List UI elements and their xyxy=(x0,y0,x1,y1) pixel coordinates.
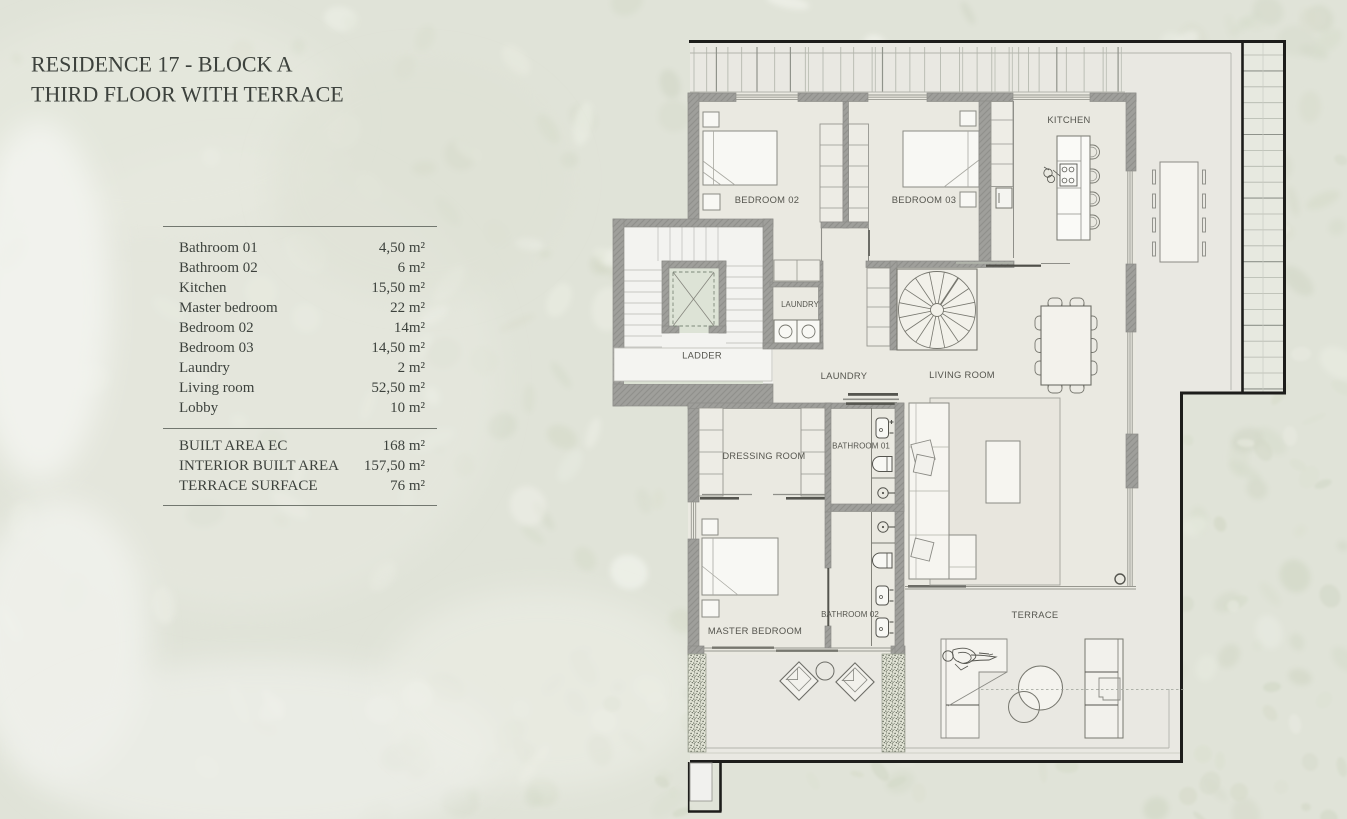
svg-text:BEDROOM 02: BEDROOM 02 xyxy=(735,194,799,205)
svg-text:Bathroom 02: Bathroom 02 xyxy=(179,260,258,276)
svg-text:LADDER: LADDER xyxy=(682,350,722,361)
svg-text:52,50 m²: 52,50 m² xyxy=(371,380,425,396)
svg-text:Living room: Living room xyxy=(179,380,255,396)
svg-text:TERRACE SURFACE: TERRACE SURFACE xyxy=(179,478,318,494)
svg-text:14,50 m²: 14,50 m² xyxy=(371,340,425,356)
svg-text:4,50 m²: 4,50 m² xyxy=(379,240,426,256)
svg-text:BEDROOM 03: BEDROOM 03 xyxy=(892,194,956,205)
svg-text:76 m²: 76 m² xyxy=(390,478,425,494)
svg-text:14m²: 14m² xyxy=(394,320,426,336)
svg-text:6 m²: 6 m² xyxy=(398,260,426,276)
svg-text:BATHROOM 01: BATHROOM 01 xyxy=(832,442,890,451)
svg-text:Master bedroom: Master bedroom xyxy=(179,300,278,316)
svg-text:Kitchen: Kitchen xyxy=(179,280,227,296)
svg-text:15,50 m²: 15,50 m² xyxy=(371,280,425,296)
svg-text:LAUNDRY: LAUNDRY xyxy=(781,300,820,309)
svg-text:BUILT AREA EC: BUILT AREA EC xyxy=(179,438,287,454)
svg-text:Laundry: Laundry xyxy=(179,360,230,376)
svg-text:Bedroom 03: Bedroom 03 xyxy=(179,340,254,356)
svg-text:157,50 m²: 157,50 m² xyxy=(364,458,426,474)
svg-text:LAUNDRY: LAUNDRY xyxy=(821,370,868,381)
svg-text:BATHROOM 02: BATHROOM 02 xyxy=(821,610,879,619)
svg-text:THIRD FLOOR WITH TERRACE: THIRD FLOOR WITH TERRACE xyxy=(31,82,344,107)
svg-text:DRESSING ROOM: DRESSING ROOM xyxy=(722,451,805,461)
svg-text:LIVING ROOM: LIVING ROOM xyxy=(929,369,995,380)
svg-text:Bedroom 02: Bedroom 02 xyxy=(179,320,254,336)
svg-text:Bathroom 01: Bathroom 01 xyxy=(179,240,258,256)
svg-text:KITCHEN: KITCHEN xyxy=(1047,114,1090,125)
svg-text:INTERIOR BUILT AREA: INTERIOR BUILT AREA xyxy=(179,458,339,474)
svg-text:RESIDENCE 17 - BLOCK A: RESIDENCE 17 - BLOCK A xyxy=(31,52,293,77)
svg-text:168 m²: 168 m² xyxy=(383,438,426,454)
svg-text:22 m²: 22 m² xyxy=(390,300,425,316)
svg-text:TERRACE: TERRACE xyxy=(1012,609,1059,620)
svg-text:Lobby: Lobby xyxy=(179,400,219,416)
svg-text:MASTER BEDROOM: MASTER BEDROOM xyxy=(708,625,802,636)
svg-text:10 m²: 10 m² xyxy=(390,400,425,416)
svg-text:2 m²: 2 m² xyxy=(398,360,426,376)
